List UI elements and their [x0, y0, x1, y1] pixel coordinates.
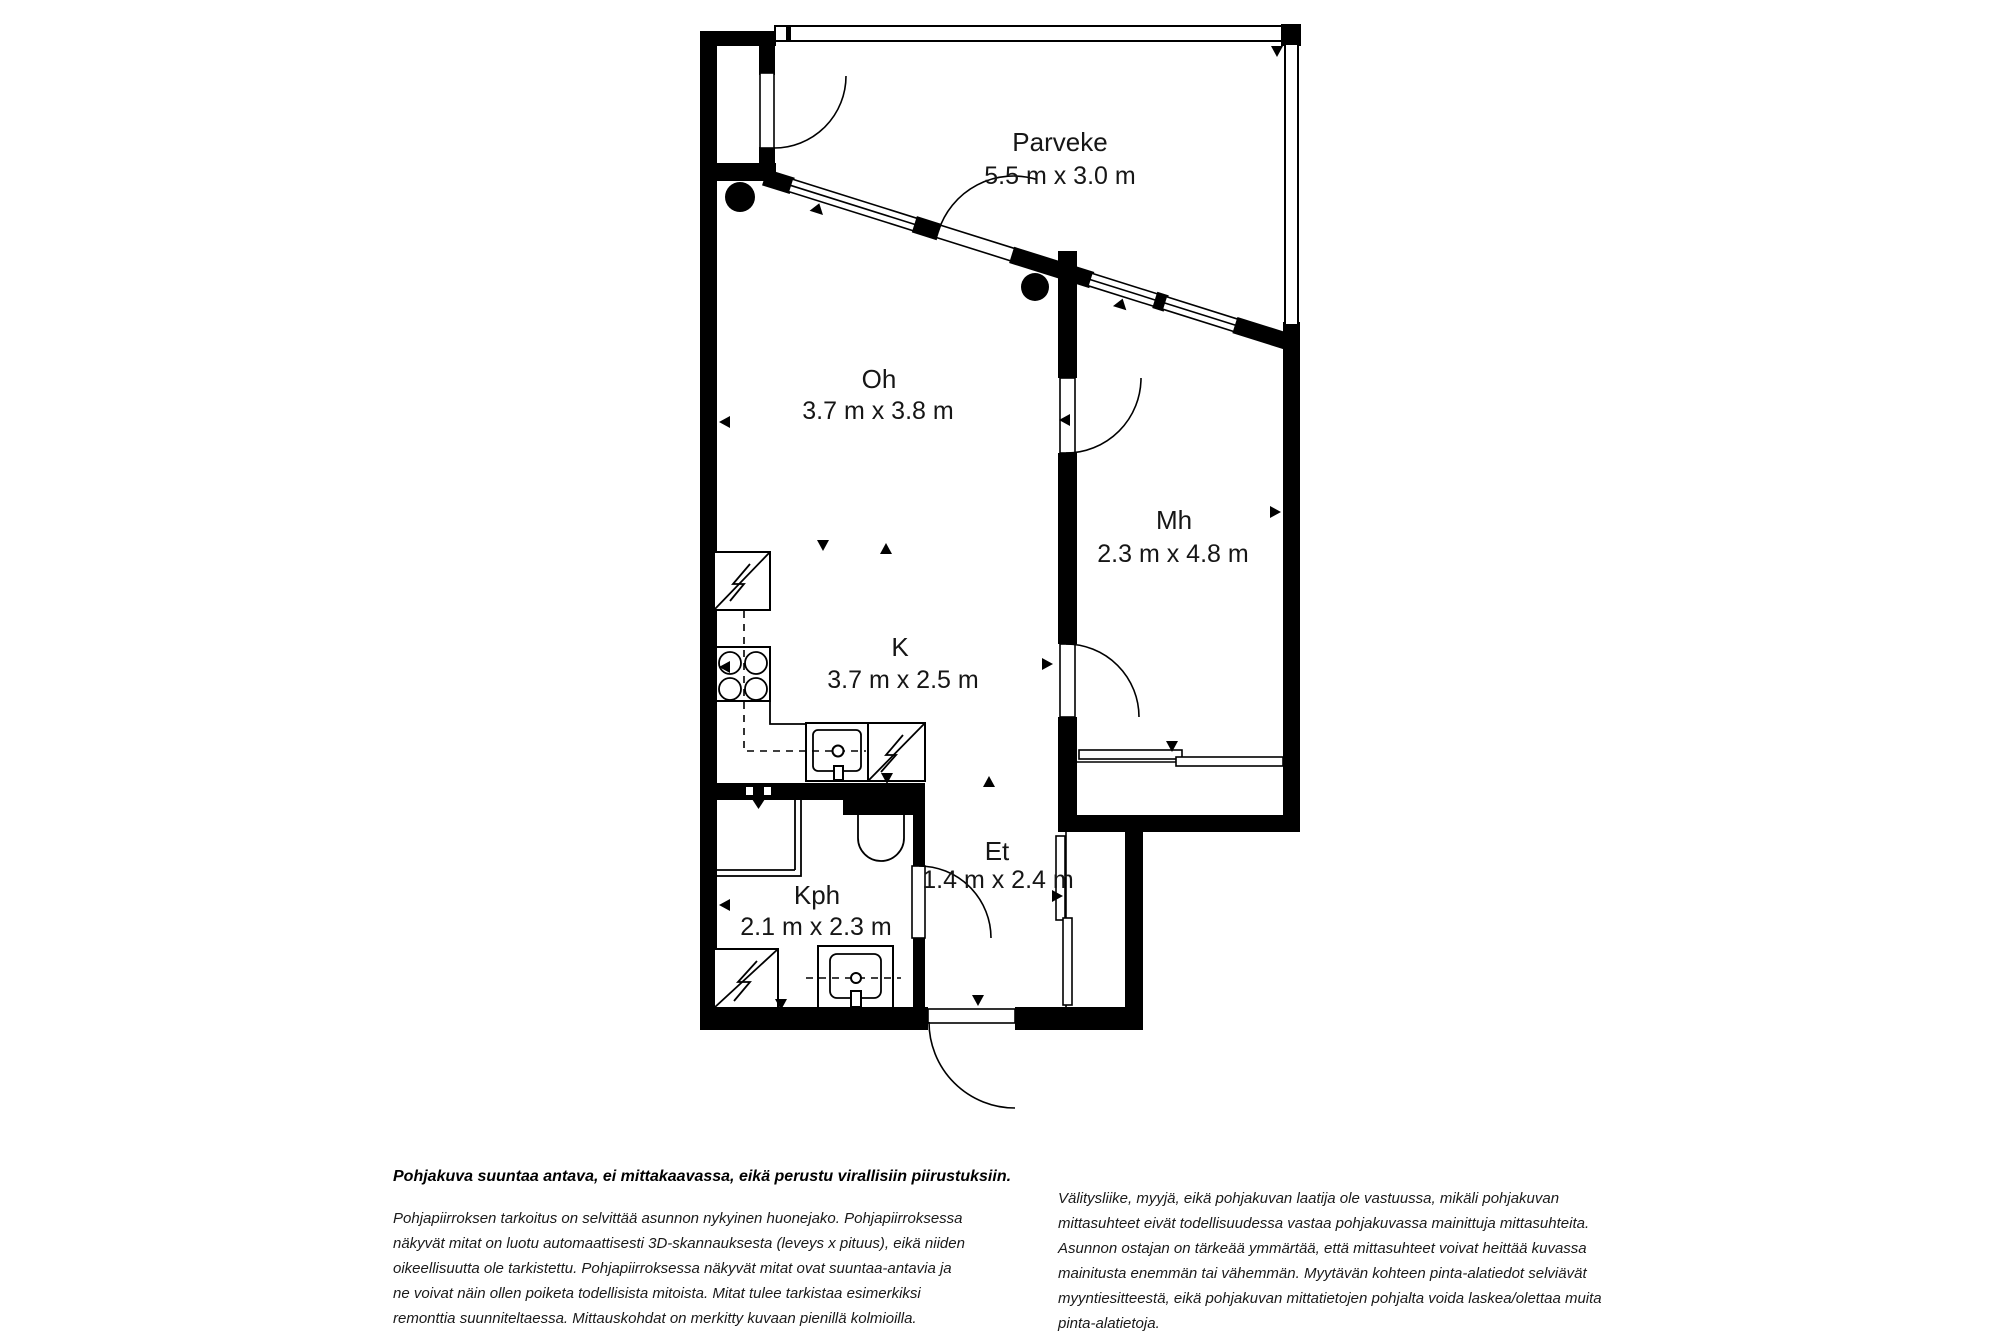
- disclaimer-line: mittasuhteet eivät todellisuudessa vasta…: [1058, 1211, 1602, 1236]
- disclaimer-line: Asunnon ostajan on tärkeää ymmärtää, ett…: [1058, 1236, 1602, 1261]
- disclaimer-section: Pohjakuva suuntaa antava, ei mittakaavas…: [0, 0, 2000, 1333]
- disclaimer-headline: Pohjakuva suuntaa antava, ei mittakaavas…: [393, 1168, 1011, 1186]
- disclaimer-line: pinta-alatietoja.: [1058, 1311, 1602, 1333]
- disclaimer-line: Pohjapiirroksen tarkoitus on selvittää a…: [393, 1206, 965, 1231]
- disclaimer-line: oikeellisuutta ole tarkistettu. Pohjapii…: [393, 1256, 965, 1281]
- disclaimer-line: ne voivat näin ollen poiketa todellisist…: [393, 1281, 965, 1306]
- disclaimer-line: remonttia suunniteltaessa. Mittauskohdat…: [393, 1306, 965, 1331]
- floor-plan-page: Parveke 5.5 m x 3.0 m Oh 3.7 m x 3.8 m M…: [0, 0, 2000, 1333]
- disclaimer-paragraph-right: Välitysliike, myyjä, eikä pohjakuvan laa…: [1058, 1186, 1602, 1333]
- disclaimer-line: Välitysliike, myyjä, eikä pohjakuvan laa…: [1058, 1186, 1602, 1211]
- disclaimer-line: näkyvät mitat on luotu automaattisesti 3…: [393, 1231, 965, 1256]
- disclaimer-paragraph-left: Pohjapiirroksen tarkoitus on selvittää a…: [393, 1206, 965, 1331]
- disclaimer-line: myyntiesitteestä, eikä pohjakuvan mittat…: [1058, 1286, 1602, 1311]
- disclaimer-line: mainitusta enemmän tai vähemmän. Myytävä…: [1058, 1261, 1602, 1286]
